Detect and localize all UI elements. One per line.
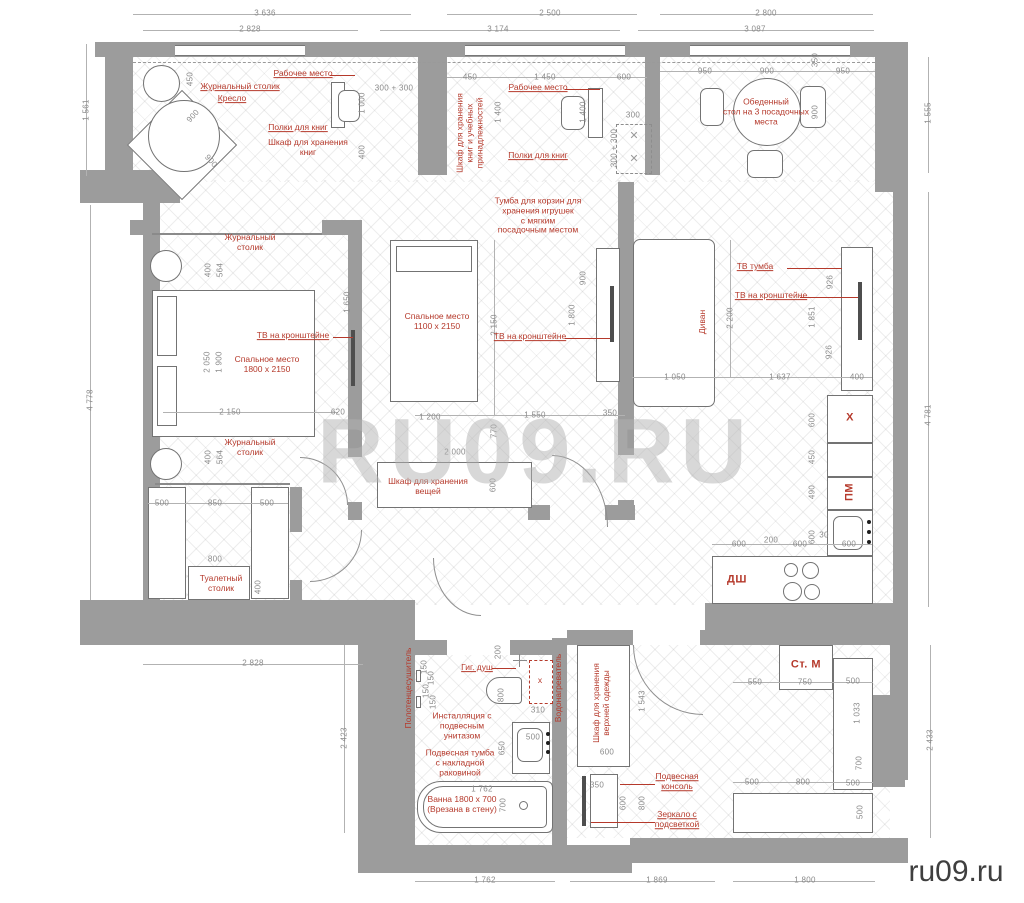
dimension-label: 700	[854, 756, 863, 770]
pillow	[157, 296, 177, 356]
dining-chair	[700, 88, 724, 126]
annotation-label: Спальное место 1100 х 2150	[405, 312, 470, 332]
tv-wall-mounted	[858, 282, 862, 340]
leader-line	[565, 338, 610, 339]
dimension-label: 600	[617, 72, 631, 81]
annotation-label: Гиг. душ	[461, 663, 493, 673]
annotation-label: Подвесная тумба с накладной раковиной	[426, 748, 495, 777]
partition-line	[155, 483, 290, 485]
dimension-line	[570, 881, 715, 882]
dimension-label: 900	[810, 105, 819, 119]
dimension-label: 3 636	[254, 8, 276, 17]
dimension-label: 2 828	[239, 24, 261, 33]
dimension-label: 1 000	[357, 92, 366, 114]
kitchen-cabinet	[827, 443, 873, 477]
annotation-label: Шкаф для хранения книг	[268, 138, 348, 158]
annotation-label: Зеркало с подсветкой	[655, 810, 699, 830]
entry-mirror	[582, 776, 586, 826]
faucet-dot	[546, 741, 550, 745]
dimension-label: 1 900	[214, 351, 223, 373]
annotation-label: Шкаф для хранения верхней одежды	[592, 663, 612, 743]
floor-plan: 3 6362 5002 8002 8283 1743 0871 5614 778…	[0, 0, 1024, 903]
window	[175, 45, 305, 56]
dimension-label: 800	[496, 688, 505, 702]
dimension-label: 950	[836, 66, 850, 75]
annotation-label: Подвесная консоль	[655, 772, 698, 792]
annotation-label: ПМ	[844, 483, 857, 501]
dimension-label: 564	[215, 450, 224, 464]
dimension-label: 1 762	[474, 875, 496, 884]
annotation-label: X	[846, 412, 854, 425]
dimension-label: 400	[850, 372, 864, 381]
dimension-label: 600	[793, 539, 807, 548]
stove-burner	[783, 582, 802, 601]
dimension-label: 900	[578, 271, 587, 285]
dining-chair	[747, 150, 783, 178]
dimension-label: 1 762	[471, 784, 493, 793]
wall-segment	[348, 502, 362, 520]
dimension-label: 4 781	[923, 404, 932, 426]
annotation-label: Обеденный стол на 3 посадочных места	[723, 97, 809, 126]
wall-segment	[875, 42, 908, 192]
dimension-label: 200	[764, 535, 778, 544]
wall-segment	[705, 603, 908, 645]
dimension-label: 1 851	[807, 306, 816, 328]
dimension-label: 300 + 300	[609, 129, 618, 168]
dimension-label: 3 174	[487, 24, 509, 33]
faucet-dot	[867, 530, 871, 534]
side-table	[143, 65, 180, 102]
dimension-label: 1 869	[646, 875, 668, 884]
dimension-label: 1 400	[578, 101, 587, 123]
window	[690, 45, 850, 56]
dimension-label: 1 650	[342, 291, 351, 313]
annotation-label: х	[538, 676, 542, 686]
stove-burner	[784, 563, 798, 577]
entry-cabinet-bottom	[733, 793, 873, 833]
annotation-label: ТВ на кронштейне	[257, 331, 329, 341]
annotation-label: Журнальный столик	[200, 82, 279, 92]
annotation-label: Ванна 1800 х 700 (Врезана в стену)	[427, 795, 497, 815]
annotation-label: Водонагреватель	[554, 654, 564, 722]
dimension-label: 500	[260, 498, 274, 507]
bookshelf	[616, 124, 652, 174]
nightstand	[150, 250, 182, 282]
dimension-label: 1 400	[493, 101, 502, 123]
annotation-label: Туалетный столик	[200, 574, 242, 594]
wall-segment	[893, 192, 908, 607]
dimension-label: 600	[807, 530, 816, 544]
dimension-label: 1 450	[534, 72, 556, 81]
bathtub-drain	[519, 801, 528, 810]
dimension-label: 1 637	[769, 372, 791, 381]
dimension-label: 850	[208, 498, 222, 507]
door-arc	[433, 558, 481, 616]
dimension-label: 3 087	[744, 24, 766, 33]
nightstand	[150, 448, 182, 480]
annotation-label: ДШ	[727, 574, 747, 587]
tv-stand	[841, 247, 873, 391]
annotation-label: Рабочее место	[508, 83, 567, 93]
pillow	[157, 366, 177, 426]
dimension-label: 500	[155, 498, 169, 507]
annotation-label: Кресло	[218, 94, 246, 104]
dimension-label: 600	[842, 539, 856, 548]
dimension-label: 1 561	[81, 99, 90, 121]
leader-line	[492, 668, 516, 669]
faucet-dot	[546, 750, 550, 754]
dimension-label: 500	[846, 676, 860, 685]
dimension-label: 490	[807, 485, 816, 499]
annotation-label: Полки для книг	[508, 151, 568, 161]
leader-line	[333, 337, 353, 338]
dimension-label: 1 555	[923, 102, 932, 124]
dimension-label: 400	[203, 263, 212, 277]
dimension-label: 2 828	[242, 658, 264, 667]
dimension-label: 450	[463, 72, 477, 81]
dimension-line	[928, 192, 929, 607]
dimension-label: 400	[253, 580, 262, 594]
wall-segment	[322, 220, 362, 235]
window-dash-line	[133, 62, 875, 63]
watermark-corner: ru09.ru	[908, 855, 1003, 889]
shower-cross	[513, 660, 527, 661]
faucet-dot	[867, 520, 871, 524]
desk	[588, 88, 603, 138]
watermark-center: RU09.RU	[317, 400, 753, 505]
dimension-label: 564	[215, 263, 224, 277]
annotation-label: Тумба для корзин для хранения игрушек с …	[495, 196, 582, 235]
dimension-label: 4 778	[85, 389, 94, 411]
annotation-label: Рабочее место	[273, 69, 332, 79]
dimension-label: 2 200	[725, 307, 734, 329]
dimension-label: 2 800	[755, 8, 777, 17]
dimension-label: 500	[855, 805, 864, 819]
dimension-label: 600	[732, 539, 746, 548]
annotation-label: ТВ на кронштейне	[735, 291, 807, 301]
tv-wall-mounted	[351, 330, 355, 386]
towel-rail	[416, 696, 421, 708]
annotation-label: Спальное место 1800 х 2150	[235, 355, 300, 375]
leader-line	[330, 75, 355, 76]
dimension-label: 950	[698, 66, 712, 75]
dimension-label: 350	[810, 53, 819, 67]
dimension-label: 750	[798, 677, 812, 686]
wall-segment	[630, 838, 908, 863]
dimension-label: 300 + 300	[375, 83, 414, 92]
dimension-label: 400	[357, 145, 366, 159]
dimension-label: 2 050	[202, 351, 211, 373]
dimension-label: 600	[600, 747, 614, 756]
kids-cabinet	[596, 248, 620, 382]
tv-wall-mounted	[610, 286, 614, 342]
stove-burner	[804, 584, 820, 600]
dimension-label: 300	[626, 110, 640, 119]
dimension-label: 900	[760, 66, 774, 75]
dimension-label: 926	[824, 345, 833, 359]
dimension-label: 2 423	[339, 727, 348, 749]
stove-burner	[802, 562, 819, 579]
dimension-label: 600	[807, 413, 816, 427]
dimension-label: 1 800	[794, 875, 816, 884]
faucet-dot	[546, 732, 550, 736]
pillow	[396, 246, 472, 272]
dimension-label: 1 800	[567, 304, 576, 326]
annotation-label: ТВ на кронштейне	[494, 332, 566, 342]
dimension-label: 400	[203, 450, 212, 464]
leader-line	[591, 822, 655, 823]
annotation-label: Диван	[698, 310, 708, 334]
wall-segment	[130, 220, 152, 235]
dimension-label: 200	[493, 645, 502, 659]
wall-segment	[415, 640, 447, 655]
leader-line	[787, 268, 842, 269]
window	[465, 45, 625, 56]
annotation-label: ТВ тумба	[737, 262, 774, 272]
wall-segment	[605, 505, 635, 520]
dimension-label: 2 500	[539, 8, 561, 17]
annotation-label: Полотенцесушитель	[404, 648, 414, 729]
wall-segment	[358, 600, 415, 873]
leader-line	[565, 89, 600, 90]
annotation-label: Журнальный столик	[225, 438, 276, 458]
dimension-line	[163, 412, 338, 413]
dimension-label: 650	[497, 741, 506, 755]
dimension-label: 700	[498, 798, 507, 812]
dimension-label: 800	[796, 777, 810, 786]
dimension-label: 450	[807, 450, 816, 464]
shower-cross	[519, 654, 520, 667]
wall-segment	[358, 845, 632, 873]
dimension-label: 150	[428, 695, 437, 709]
leader-line	[800, 297, 858, 298]
dimension-label: 1 050	[664, 372, 686, 381]
annotation-label: Журнальный столик	[225, 233, 276, 253]
wall-segment	[290, 580, 302, 602]
dimension-label: 800	[208, 554, 222, 563]
dimension-label: 1 033	[852, 702, 861, 724]
dimension-label: 500	[526, 732, 540, 741]
dimension-label: 2 433	[925, 729, 934, 751]
annotation-label: Инсталляция с подвесным унитазом	[433, 711, 492, 740]
dimension-label: 600	[618, 796, 627, 810]
dimension-label: 310	[531, 705, 545, 714]
dimension-label: 30	[819, 530, 829, 539]
annotation-label: Ст. М	[791, 659, 821, 672]
wall-segment	[567, 630, 633, 645]
dimension-label: 350	[590, 780, 604, 789]
dimension-label: 800	[637, 796, 646, 810]
wall-segment	[510, 640, 552, 655]
dimension-label: 2 150	[219, 407, 241, 416]
dimension-label: 926	[825, 275, 834, 289]
annotation-label: Полки для книг	[268, 123, 328, 133]
annotation-label: Шкаф для хранения книг и учебных принадл…	[455, 93, 484, 173]
leader-line	[620, 784, 655, 785]
wall-segment	[80, 600, 360, 645]
dimension-label: 500	[745, 777, 759, 786]
dimension-label: 450	[185, 72, 194, 86]
wall-segment	[105, 42, 133, 178]
dimension-label: 550	[748, 677, 762, 686]
dimension-label: 1 543	[637, 690, 646, 712]
dimension-label: 500	[846, 778, 860, 787]
